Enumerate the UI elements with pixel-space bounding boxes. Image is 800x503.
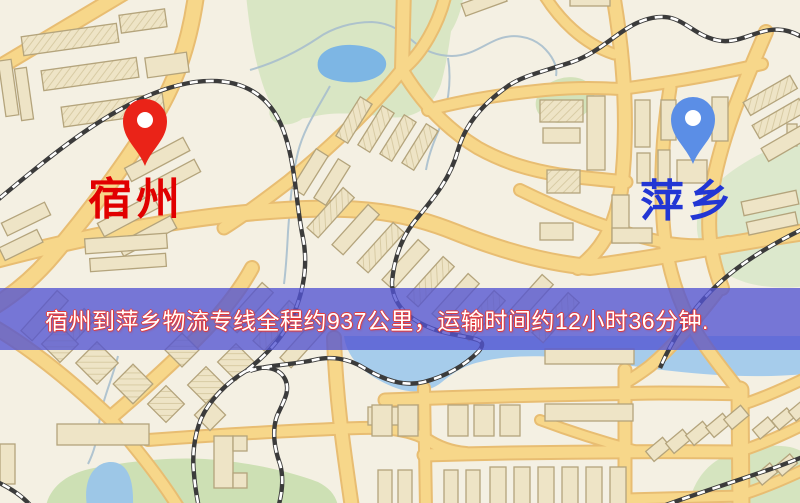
map-canvas [0,0,800,503]
route-info-banner: 宿州到萍乡物流专线全程约937公里，运输时间约12小时36分钟. [0,288,800,350]
destination-label: 萍乡 [640,180,736,224]
destination-pin-icon[interactable] [662,94,724,166]
origin-label: 宿州 [88,178,184,222]
route-info-text: 宿州到萍乡物流专线全程约937公里，运输时间约12小时36分钟. [45,302,709,336]
origin-pin-icon[interactable] [114,96,176,168]
map-view[interactable]: 宿州 萍乡 宿州到萍乡物流专线全程约937公里，运输时间约12小时36分钟. [0,0,800,503]
